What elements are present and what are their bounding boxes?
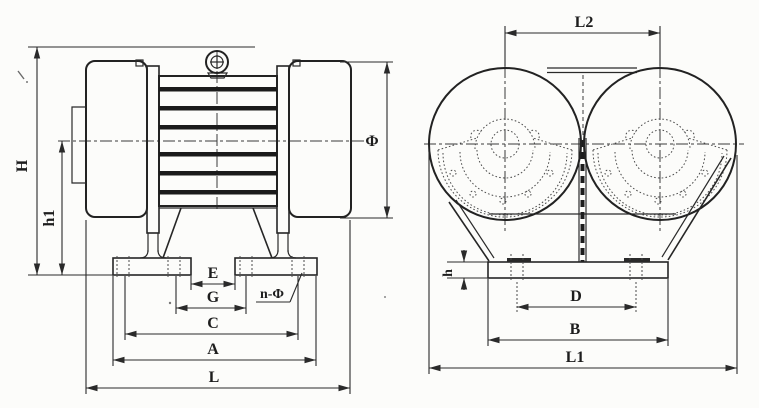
- label-h1: h1: [41, 210, 58, 227]
- dimension-phi: Φ: [340, 62, 393, 218]
- dimension-h: h: [441, 250, 488, 290]
- bolt-hole-callout: n-Φ: [256, 273, 302, 302]
- left-weight-cover: [86, 61, 147, 217]
- side-view: L2 h D B L1: [424, 14, 744, 374]
- left-cover-step: [72, 107, 86, 183]
- base-plate: [488, 254, 668, 282]
- motor-body-outline: [159, 76, 277, 206]
- right-base-pad: [624, 258, 650, 263]
- label-B: B: [570, 321, 581, 338]
- left-foot: [113, 258, 191, 275]
- technical-drawing-page: H h1 Φ E G: [0, 0, 759, 408]
- label-E: E: [208, 265, 219, 282]
- label-L1: L1: [566, 349, 585, 366]
- label-G: G: [207, 289, 220, 306]
- callout-leader-line: [290, 273, 302, 302]
- label-H: H: [14, 159, 31, 172]
- dimension-L2: L2: [505, 14, 660, 66]
- label-A: A: [207, 341, 219, 358]
- label-phi: Φ: [365, 133, 378, 150]
- dimension-D: D: [517, 282, 636, 312]
- front-view: H h1 Φ E G: [14, 47, 393, 394]
- eye-bolt: [206, 51, 228, 78]
- vibration-motor-dimension-drawing: H h1 Φ E G: [0, 0, 759, 408]
- right-flange: [277, 66, 289, 233]
- dimension-E: E: [191, 265, 235, 290]
- label-C: C: [207, 315, 219, 332]
- right-foot: [235, 258, 317, 275]
- motor-body: [159, 76, 277, 206]
- label-D: D: [570, 288, 582, 305]
- cooling-fins: [159, 87, 277, 195]
- base-plate-outline: [488, 262, 668, 278]
- label-L: L: [209, 369, 220, 386]
- dimension-H: H: [14, 47, 255, 275]
- dimension-L: L: [86, 220, 350, 394]
- label-L2: L2: [575, 14, 594, 31]
- dimension-h1: h1: [41, 141, 62, 275]
- label-n-phi: n-Φ: [260, 287, 284, 302]
- mounting-stand: [140, 208, 296, 258]
- right-weight-cover: [289, 61, 351, 217]
- label-h: h: [441, 269, 456, 277]
- left-flange: [147, 66, 159, 233]
- scan-artifacts: [18, 71, 386, 304]
